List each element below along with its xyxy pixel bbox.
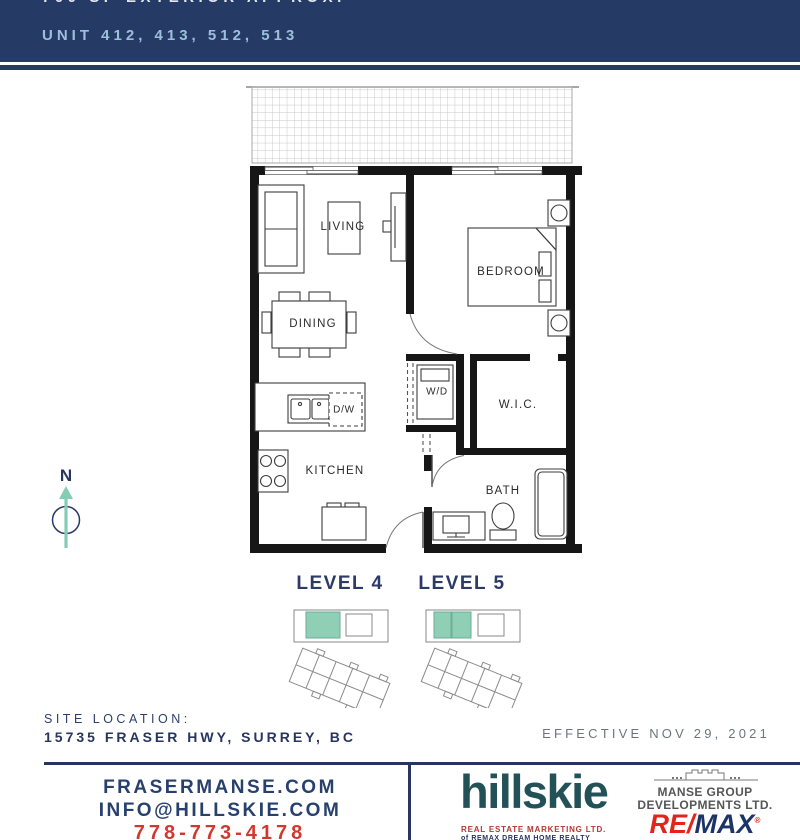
dining-label: DINING <box>289 318 336 330</box>
bedroom-label: BEDROOM <box>477 266 545 278</box>
level-4-label: LEVEL 4 <box>296 573 383 595</box>
site-address: 15735 FRASER HWY, SURREY, BC <box>44 729 356 745</box>
living-label: LIVING <box>321 221 366 233</box>
kitchen-label: KITCHEN <box>306 465 365 477</box>
header-sf-line: 700 SF EXTERIOR APPROX. <box>42 0 346 6</box>
remax-logo: RE/MAX® <box>650 811 761 838</box>
bath-label: BATH <box>486 485 521 497</box>
email-text: INFO@HILLSKIE.COM <box>44 800 396 822</box>
developer-line-1: MANSE GROUP <box>657 785 752 799</box>
balcony-deck <box>246 87 579 163</box>
level-5-keyplan <box>420 598 532 708</box>
hillskie-subline-1: REAL ESTATE MARKETING LTD. <box>461 825 606 834</box>
remax-re: RE/ <box>650 809 695 839</box>
compass-icon <box>44 484 88 550</box>
bath-fixtures <box>433 469 567 540</box>
dishwasher-label: D/W <box>333 405 355 416</box>
north-label: N <box>56 466 76 486</box>
header-band: 700 SF EXTERIOR APPROX. UNIT 412, 413, 5… <box>0 0 800 62</box>
phone-text: 778-773-4178 <box>44 822 396 840</box>
washer-dryer-label: W/D <box>426 387 448 398</box>
level-4-keyplan <box>288 598 400 708</box>
manse-building-icon <box>652 766 760 782</box>
level-5-label: LEVEL 5 <box>418 573 505 595</box>
header-rule <box>0 65 800 70</box>
header-unit-line: UNIT 412, 413, 512, 513 <box>42 27 298 44</box>
floorplan-flyer: 700 SF EXTERIOR APPROX. UNIT 412, 413, 5… <box>0 0 800 840</box>
hillskie-subline-2: of REMAX DREAM HOME REALTY <box>461 835 590 840</box>
footer-divider <box>408 762 411 840</box>
effective-date: EFFECTIVE NOV 29, 2021 <box>542 726 770 741</box>
remax-max: MAX <box>695 809 755 839</box>
remax-trademark-icon: ® <box>755 816 761 825</box>
site-location-label: SITE LOCATION: <box>44 712 191 726</box>
hillskie-logo: hillskie <box>460 768 607 815</box>
walk-in-closet-label: W.I.C. <box>499 399 538 411</box>
website-text: FRASERMANSE.COM <box>44 777 396 799</box>
footer-top-rule <box>44 762 800 765</box>
